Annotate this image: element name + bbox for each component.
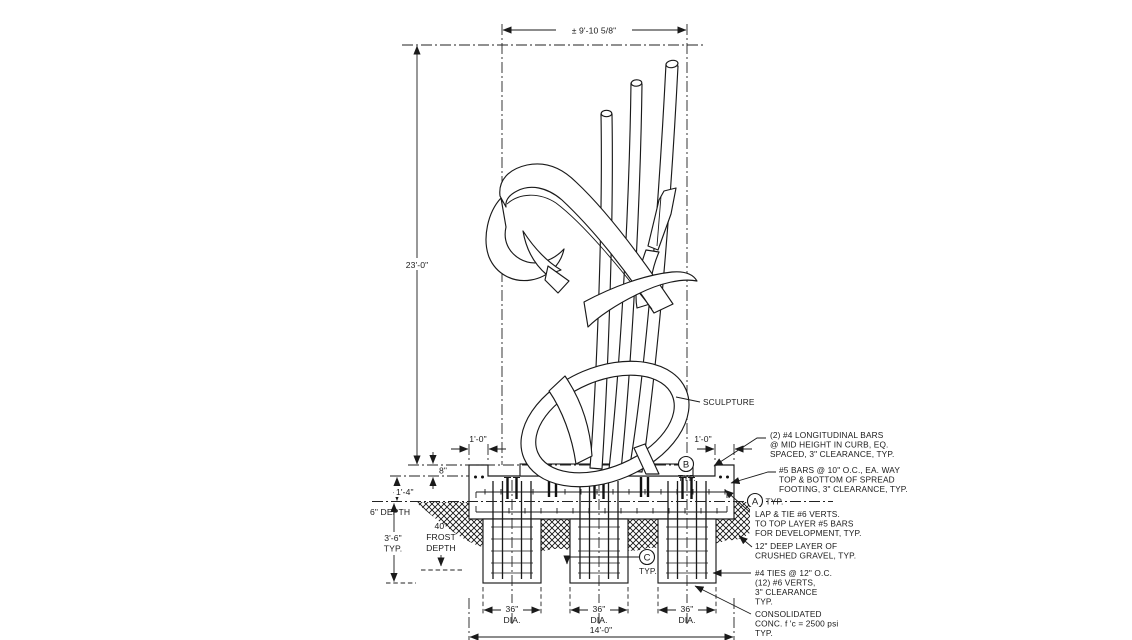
svg-text:LAP & TIE #6 VERTS.: LAP & TIE #6 VERTS. [755,509,840,519]
svg-text:FOR DEVELOPMENT, TYP.: FOR DEVELOPMENT, TYP. [755,528,862,538]
dim-envelope-width: ± 9'-10 5/8" [572,26,617,36]
tube-top-cap [601,110,612,116]
dim-pier-dia-left: 36" DIA. [483,587,541,625]
svg-text:#5 BARS @ 10" O.C., EA. WAY: #5 BARS @ 10" O.C., EA. WAY [779,465,900,475]
leader-note2 [731,472,776,483]
svg-text:DIA.: DIA. [678,615,695,625]
note-ties-verts: #4 TIES @ 12" O.C. (12) #6 VERTS, 3" CLE… [755,568,832,607]
svg-text:12" DEEP LAYER OF: 12" DEEP LAYER OF [755,541,837,551]
svg-text:(2) #4 LONGITUDINAL BARS: (2) #4 LONGITUDINAL BARS [770,430,884,440]
svg-text:TYP.: TYP. [766,497,784,507]
label-frost-word1: FROST [426,532,456,542]
technical-drawing: ± 9'-10 5/8" 23'-0" 1'-0" 1'-0" 8" 1'-4"… [0,0,1132,640]
tube-top-cap [631,79,642,86]
svg-text:36": 36" [506,604,519,614]
svg-text:3" CLEARANCE: 3" CLEARANCE [755,587,818,597]
callout-c: C TYP. [639,550,657,577]
dim-curb-reveal: 8" [439,466,447,476]
svg-text:14'-0": 14'-0" [590,625,613,635]
svg-text:A: A [752,497,759,508]
svg-text:TOP & BOTTOM OF SPREAD: TOP & BOTTOM OF SPREAD [779,475,895,485]
svg-text:36": 36" [681,604,694,614]
svg-text:CRUSHED GRAVEL, TYP.: CRUSHED GRAVEL, TYP. [755,551,856,561]
dim-overall-height: 23'-0" [406,260,429,270]
label-topsoil-depth: 6" DEPTH [370,507,410,517]
label-sculpture: SCULPTURE [703,397,755,407]
sculpture [486,59,708,510]
dim-pier-embed: 3'-6" [384,533,402,543]
note-lap-tie-verts: LAP & TIE #6 VERTS. TO TOP LAYER #5 BARS… [750,507,863,540]
dim-pier-dia-right: 36" DIA. [658,587,716,625]
callout-a: A TYP. [748,494,784,509]
dim-footing-to-grade: 1'-4" [396,487,414,497]
svg-text:36": 36" [593,604,606,614]
note-crushed-gravel: 12" DEEP LAYER OF CRUSHED GRAVEL, TYP. [755,541,856,561]
svg-text:@ MID HEIGHT IN CURB, EQ.: @ MID HEIGHT IN CURB, EQ. [770,440,889,450]
note-longitudinal-bars: (2) #4 LONGITUDINAL BARS @ MID HEIGHT IN… [770,430,894,459]
svg-text:#4 TIES @ 12" O.C.: #4 TIES @ 12" O.C. [755,568,832,578]
svg-text:CONSOLIDATED: CONSOLIDATED [755,609,822,619]
label-frost-value: 40" [435,521,448,531]
sculpture-inner-ribbon [549,376,592,464]
svg-text:TYP.: TYP. [639,566,657,576]
svg-text:C: C [644,553,651,564]
dim-pier-embed-typ: TYP. [384,544,402,554]
leader-note1 [714,438,766,466]
dim-curb-right-width: 1'-0" [694,434,712,444]
svg-text:TYP.: TYP. [755,597,773,607]
svg-text:CONC. f 'c = 2500 psi: CONC. f 'c = 2500 psi [755,619,838,629]
svg-text:DIA.: DIA. [590,615,607,625]
svg-text:FOOTING, 3" CLEARANCE, TYP.: FOOTING, 3" CLEARANCE, TYP. [779,484,908,494]
dim-pier-dia-middle: 36" DIA. [570,587,628,625]
svg-text:(12) #6 VERTS,: (12) #6 VERTS, [755,578,816,588]
svg-text:SPACED, 3" CLEARANCE, TYP.: SPACED, 3" CLEARANCE, TYP. [770,449,894,459]
svg-text:TO TOP LAYER #5 BARS: TO TOP LAYER #5 BARS [755,519,854,529]
svg-text:B: B [683,460,689,471]
label-frost-word2: DEPTH [426,543,456,553]
svg-text:TYP.: TYP. [755,628,773,638]
note-5-bars: #5 BARS @ 10" O.C., EA. WAY TOP & BOTTOM… [779,465,908,494]
drawing-sheet: ± 9'-10 5/8" 23'-0" 1'-0" 1'-0" 8" 1'-4"… [0,0,1132,640]
svg-text:DIA.: DIA. [503,615,520,625]
svg-text:TYP.: TYP. [678,473,696,483]
dim-curb-left-width: 1'-0" [469,434,487,444]
note-consolidated-conc: CONSOLIDATED CONC. f 'c = 2500 psi TYP. [755,609,838,638]
